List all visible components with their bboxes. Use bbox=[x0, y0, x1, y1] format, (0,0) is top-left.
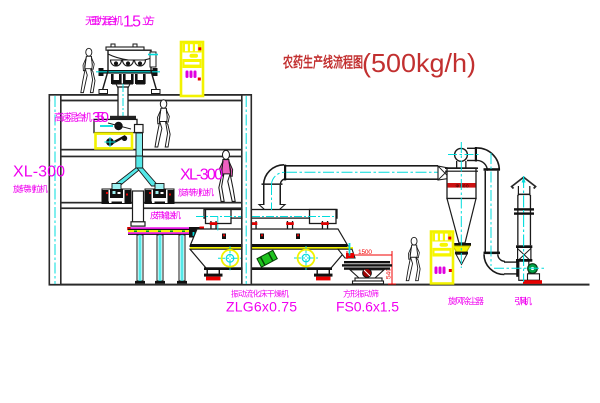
svg-text:农药生产线流程图: 农药生产线流程图 bbox=[282, 54, 363, 72]
svg-text:XL-300: XL-300 bbox=[180, 167, 223, 184]
svg-text:高速混合机: 高速混合机 bbox=[54, 111, 92, 124]
svg-text:立方: 立方 bbox=[142, 15, 155, 28]
svg-text:引风机: 引风机 bbox=[514, 296, 532, 307]
svg-text:Φ500: Φ500 bbox=[456, 183, 469, 188]
svg-text:旋转制粒机: 旋转制粒机 bbox=[13, 184, 48, 194]
svg-text:旋转制粒机: 旋转制粒机 bbox=[178, 188, 214, 198]
svg-text:方形振动筛: 方形振动筛 bbox=[343, 289, 379, 299]
svg-text:1500: 1500 bbox=[358, 249, 372, 256]
svg-text:无重力混合机: 无重力混合机 bbox=[85, 15, 123, 28]
svg-text:旋风除尘器: 旋风除尘器 bbox=[448, 296, 484, 306]
svg-text:(500kg/h): (500kg/h) bbox=[362, 48, 476, 78]
svg-text:1.5: 1.5 bbox=[123, 14, 141, 31]
svg-text:XL-300: XL-300 bbox=[13, 164, 65, 181]
svg-text:FS0.6x1.5: FS0.6x1.5 bbox=[336, 299, 399, 315]
svg-text:350: 350 bbox=[92, 109, 109, 126]
svg-text:振动流化床干燥机: 振动流化床干燥机 bbox=[231, 289, 289, 299]
svg-text:ZLG6x0.75: ZLG6x0.75 bbox=[226, 299, 297, 315]
svg-text:皮带输送机: 皮带输送机 bbox=[150, 211, 181, 221]
